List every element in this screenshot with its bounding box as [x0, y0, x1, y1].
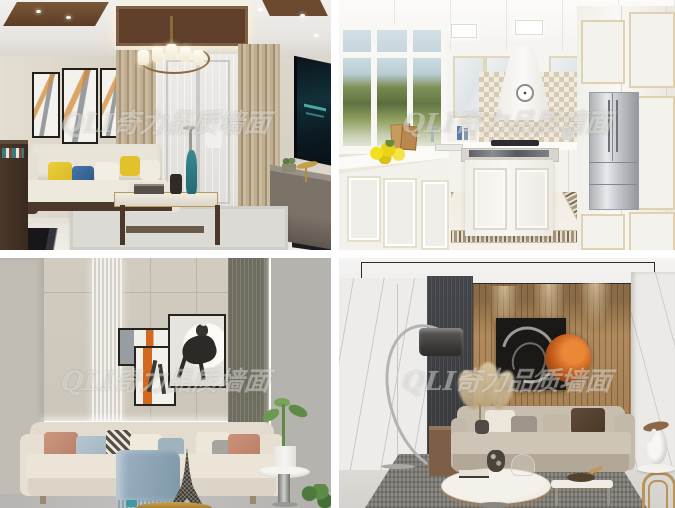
pillow-brown [571, 408, 605, 434]
ceiling-spotlight [66, 16, 71, 19]
decor-bowl [567, 473, 595, 482]
fridge-drawer-line [589, 184, 637, 185]
window-pane [377, 30, 407, 52]
decor-vase [487, 450, 505, 472]
ceiling-light [451, 24, 477, 38]
island-glass-inset [469, 150, 549, 157]
cooktop [491, 140, 539, 146]
gallery-image-living-room-horse-art[interactable]: QLI奇力品质墙面 [0, 258, 331, 508]
ceiling-coffer [116, 6, 248, 46]
cabinet-panel [629, 212, 675, 250]
sofa-leg [250, 496, 256, 504]
ceiling-light [515, 20, 543, 35]
refrigerator [589, 92, 639, 210]
chandelier-shade [193, 50, 204, 65]
cabinet-panel [629, 12, 675, 88]
decor-bottles [457, 126, 462, 140]
wall-art-panel [32, 72, 60, 138]
decor-tray [134, 184, 164, 194]
decor-planter [282, 164, 296, 172]
decor-gold-bird [296, 160, 319, 170]
clock [516, 84, 534, 102]
cabinet-panel [347, 176, 381, 242]
balcony-chair [206, 122, 222, 148]
decor-gold-bird [305, 168, 307, 182]
coffee-table-base [120, 205, 220, 245]
panel-seam [44, 292, 228, 293]
ceiling-spotlight [36, 10, 41, 13]
throw-blanket [116, 450, 180, 502]
decor-jar [470, 130, 476, 140]
side-table-arch-inner [648, 480, 668, 508]
chandelier-shade [152, 47, 163, 62]
side-table-column [278, 474, 290, 504]
fridge-drawer-line [589, 162, 637, 163]
fridge-handle [608, 100, 610, 152]
arc-lamp-base [381, 464, 415, 469]
sofa-leg [40, 496, 46, 504]
plant [300, 484, 331, 508]
kettle [561, 128, 573, 140]
sink [435, 144, 463, 151]
island-panel [515, 168, 549, 230]
table-leg [607, 488, 610, 506]
spotlight-glow [577, 282, 613, 334]
decor-bottles [464, 128, 468, 140]
window-pane [343, 58, 371, 146]
coffee-table-shelf [126, 226, 204, 233]
gallery-image-living-room-chinese[interactable]: QLI奇力品质墙面 [0, 0, 331, 250]
decor-vase [170, 174, 182, 194]
faucet [431, 128, 434, 142]
ceiling-spotlight [258, 8, 263, 11]
pampas-vase [475, 420, 489, 434]
image-grid: QLI奇力品质墙面 [0, 0, 675, 508]
island-panel [473, 168, 507, 230]
fridge-handle [616, 100, 618, 152]
gallery-image-white-kitchen[interactable]: QLI奇力品质墙面 [339, 0, 675, 250]
window-pane [343, 30, 371, 52]
ceiling-coffer [3, 2, 109, 26]
decor-sculpture [186, 150, 197, 194]
plant-stem [282, 404, 285, 448]
cabinet-panel [581, 214, 625, 250]
table-leg [479, 502, 509, 508]
artwork-jockey-helmet [200, 320, 207, 326]
decor-lemons [369, 140, 407, 164]
decor-books [2, 148, 24, 158]
ceiling-spotlight [300, 14, 305, 17]
decor-glass-dome [511, 454, 535, 476]
window-pane [413, 30, 441, 52]
decor-books [459, 470, 489, 478]
cabinet-panel [421, 180, 449, 250]
arc-lamp-shade [419, 328, 463, 356]
table-leg [555, 488, 558, 506]
pillow-yellow [120, 156, 140, 176]
chandelier-shade [138, 50, 149, 65]
wall-art-panel [62, 68, 98, 144]
sofa-seat [451, 432, 631, 456]
teacup [126, 500, 137, 507]
copper-disc [545, 334, 591, 382]
cabinet-panel [581, 20, 625, 84]
side-table-gold [136, 502, 212, 508]
pillow-white [140, 160, 160, 180]
ceiling-spotlight [314, 34, 319, 37]
ceiling-coffer [262, 0, 328, 16]
side-table-disc [637, 464, 675, 473]
side-table-base [272, 502, 298, 507]
coffee-table-round [441, 468, 551, 504]
fridge-door-split [612, 93, 613, 161]
chandelier-shade [180, 47, 191, 62]
chandelier-shade [166, 44, 177, 59]
gallery-image-living-room-wood-wall[interactable]: QLI奇力品质墙面 [339, 258, 675, 508]
cabinet-panel [383, 178, 417, 248]
